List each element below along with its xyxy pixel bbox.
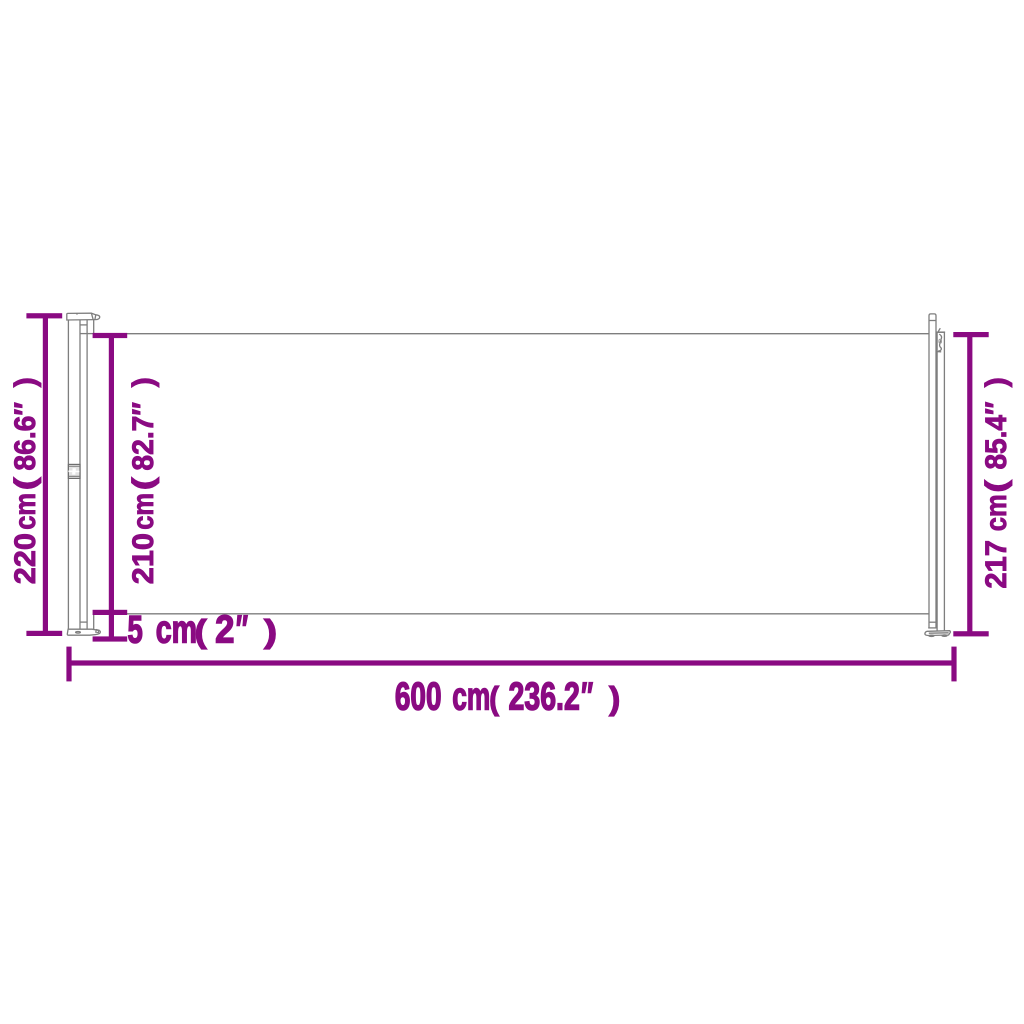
svg-text:85.4″: 85.4″ <box>980 402 1013 470</box>
svg-text:2: 2 <box>215 608 234 651</box>
svg-text:217: 217 <box>979 540 1012 589</box>
svg-text:(: ( <box>126 477 159 491</box>
svg-text:(: ( <box>980 479 1013 492</box>
svg-text:82.7″: 82.7″ <box>127 402 160 471</box>
svg-text:220: 220 <box>9 533 42 584</box>
svg-text:cm: cm <box>979 494 1012 531</box>
svg-text:600: 600 <box>395 675 442 719</box>
svg-text:cm: cm <box>156 608 197 651</box>
svg-text:cm: cm <box>452 676 490 719</box>
svg-text:(: ( <box>9 477 42 491</box>
svg-text:86.6″: 86.6″ <box>9 402 42 471</box>
svg-text:5: 5 <box>127 609 142 652</box>
svg-text:210: 210 <box>127 533 160 584</box>
svg-text:): ) <box>980 377 1013 387</box>
svg-text:236.2: 236.2 <box>509 675 580 718</box>
svg-text:″: ″ <box>236 607 248 651</box>
svg-text:): ) <box>264 613 277 649</box>
svg-text:): ) <box>127 377 160 387</box>
svg-text:″: ″ <box>581 674 593 718</box>
svg-text:cm: cm <box>126 493 159 530</box>
svg-text:(: ( <box>489 680 499 717</box>
svg-text:): ) <box>9 377 42 387</box>
svg-text:(: ( <box>195 614 208 650</box>
svg-text:): ) <box>609 680 620 717</box>
svg-text:cm: cm <box>8 493 41 530</box>
